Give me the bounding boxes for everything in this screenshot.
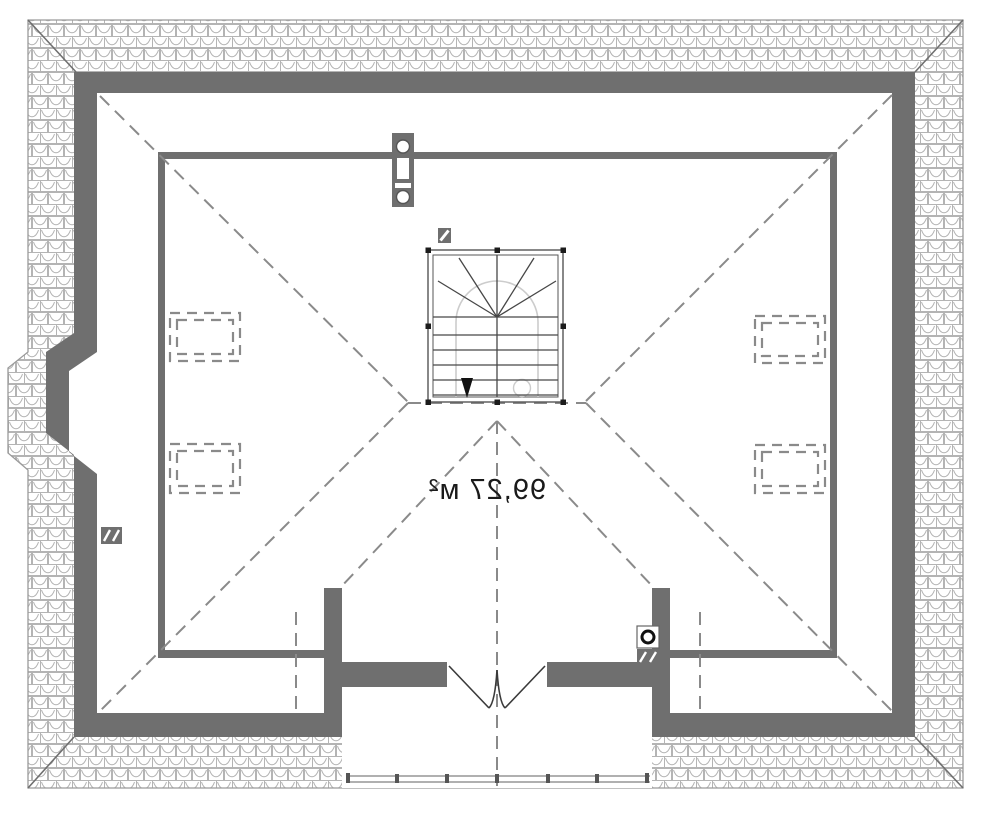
dormer-front-wall-right — [547, 662, 670, 687]
chimney-top — [392, 133, 414, 207]
hip-dashed-top-right — [586, 95, 892, 401]
vent-small-icon — [438, 228, 451, 243]
attic-floor-plan: 99,27 м² — [0, 0, 1000, 822]
skylight-left-lower — [170, 444, 240, 493]
skylight-right-lower — [755, 445, 825, 493]
round-flue-icon — [642, 631, 654, 643]
chimney-flue-lower — [397, 191, 410, 204]
area-label: 99,27 м² — [428, 474, 546, 506]
hip-dashed-top-left — [100, 96, 408, 402]
wall-bottom-left — [158, 650, 328, 658]
skylight-right-upper — [755, 316, 825, 363]
area-label-group: 99,27 м² — [428, 474, 546, 506]
chimney-flue-upper — [397, 140, 410, 153]
wall-top — [158, 152, 837, 159]
floor-plan-canvas: 99,27 м² — [0, 0, 1000, 822]
chimney-slot — [397, 158, 409, 179]
chimney-right-icon — [637, 626, 659, 665]
wall-left — [158, 152, 165, 658]
stair-outer-frame — [428, 250, 563, 402]
wall-bottom-right — [668, 650, 837, 658]
staircase — [426, 248, 567, 406]
chimney-slot-small — [395, 183, 411, 188]
dormer-front-wall-left — [324, 662, 447, 687]
skylight-left-upper — [170, 313, 240, 361]
vent-left-wall-icon — [101, 527, 122, 544]
wall-right — [830, 152, 837, 658]
